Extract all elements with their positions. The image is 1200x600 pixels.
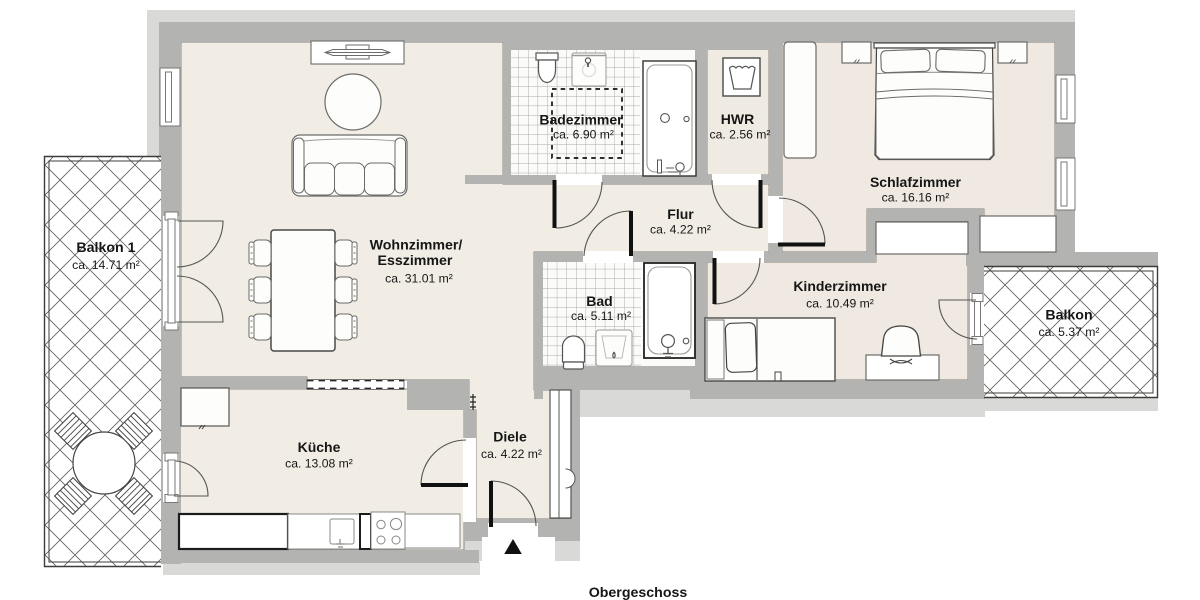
svg-text:ca. 4.22 m²: ca. 4.22 m² [481, 447, 542, 461]
svg-text:HWR: HWR [721, 111, 754, 127]
svg-text:Kinderzimmer: Kinderzimmer [793, 278, 887, 294]
svg-text:ca. 5.11 m²: ca. 5.11 m² [571, 309, 631, 323]
svg-text:ca. 5.37 m²: ca. 5.37 m² [1039, 325, 1100, 339]
svg-text:Diele: Diele [493, 429, 527, 445]
svg-text:Obergeschoss: Obergeschoss [589, 585, 688, 600]
svg-text:ca. 10.49 m²: ca. 10.49 m² [806, 297, 874, 311]
svg-text:Esszimmer: Esszimmer [378, 253, 453, 269]
svg-text:Bad: Bad [586, 293, 612, 309]
svg-text:ca. 4.22 m²: ca. 4.22 m² [650, 223, 711, 237]
svg-text:Balkon 1: Balkon 1 [76, 240, 135, 256]
svg-text:Küche: Küche [298, 439, 341, 455]
svg-text:ca. 13.08 m²: ca. 13.08 m² [285, 457, 353, 471]
svg-text:ca. 16.16 m²: ca. 16.16 m² [882, 191, 950, 205]
svg-text:ca. 2.56 m²: ca. 2.56 m² [710, 128, 771, 142]
svg-text:Flur: Flur [667, 206, 694, 222]
svg-text:Wohnzimmer/: Wohnzimmer/ [370, 238, 463, 254]
svg-text:Schlafzimmer: Schlafzimmer [870, 174, 962, 190]
svg-text:ca. 14.71 m²: ca. 14.71 m² [72, 258, 140, 272]
svg-text:Badezimmer: Badezimmer [539, 112, 623, 128]
svg-text:ca. 6.90 m²: ca. 6.90 m² [553, 128, 614, 142]
svg-text:ca. 31.01 m²: ca. 31.01 m² [385, 272, 453, 286]
svg-text:Balkon: Balkon [1045, 308, 1092, 324]
